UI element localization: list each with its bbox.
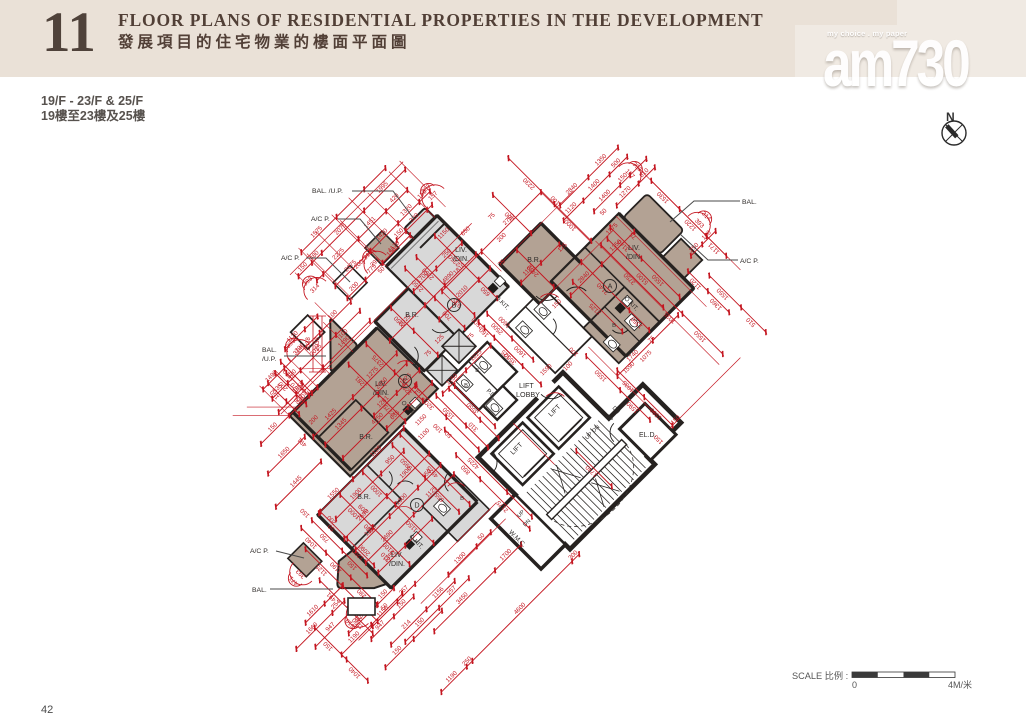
svg-text:50: 50 [599,207,609,217]
svg-text:B: B [464,383,468,389]
svg-text:150: 150 [297,261,310,274]
svg-text:LIV.: LIV. [391,552,403,559]
svg-text:750: 750 [318,531,331,544]
svg-text:200: 200 [496,231,509,244]
svg-text:B.R.: B.R. [527,257,541,264]
svg-text:/DIN.: /DIN. [453,256,469,263]
svg-text:D: D [414,501,419,510]
svg-text:310: 310 [467,420,480,433]
svg-text:100: 100 [549,194,562,207]
svg-text:A/C P.: A/C P. [281,255,300,262]
svg-text:A/C P.: A/C P. [250,548,269,555]
svg-text:BAL.: BAL. [262,347,277,354]
svg-text:B: B [452,301,457,310]
svg-text:B: B [460,496,464,502]
svg-text:491: 491 [296,436,309,449]
svg-text:150: 150 [322,639,335,652]
svg-text:0: 0 [852,680,857,690]
svg-text:650: 650 [460,225,473,238]
svg-text:O.KIT.: O.KIT. [494,294,511,311]
svg-text:LIV.: LIV. [455,247,467,254]
svg-text:A/C P.: A/C P. [740,258,759,265]
svg-text:BAL.: BAL. [742,199,757,206]
svg-text:/DIN.: /DIN. [389,561,405,568]
svg-text:250: 250 [461,655,474,668]
svg-text:500: 500 [610,157,623,170]
svg-text:1100: 1100 [417,427,432,442]
svg-text:C: C [402,377,407,386]
svg-text:150: 150 [391,644,404,657]
svg-text:LIV.: LIV. [628,245,640,252]
svg-text:157: 157 [427,189,440,202]
svg-text:EL.D.: EL.D. [639,432,657,439]
svg-text:SCALE 比例 :: SCALE 比例 : [792,670,848,681]
svg-text:100: 100 [432,421,445,434]
svg-text:LIFT: LIFT [519,381,534,390]
svg-text:50: 50 [476,532,486,542]
svg-text:BAL. /U.P.: BAL. /U.P. [312,188,343,195]
svg-text:510: 510 [745,316,758,329]
svg-text:BAL.: BAL. [252,587,267,594]
svg-text:4M/米: 4M/米 [948,679,972,690]
svg-text:B.: B. [475,368,481,374]
svg-text:1590: 1590 [622,360,637,375]
svg-text:75: 75 [487,211,497,221]
svg-text:257: 257 [446,584,459,597]
svg-text:/DIN.: /DIN. [626,254,642,261]
svg-text:/DIN.: /DIN. [373,390,389,397]
svg-text:314: 314 [309,282,322,295]
svg-text:214: 214 [400,618,413,631]
svg-text:100: 100 [327,308,340,321]
svg-text:A: A [608,282,613,291]
svg-text:A/C P.: A/C P. [311,216,330,223]
svg-text:LIV.: LIV. [375,381,387,388]
svg-text:1150: 1150 [414,413,429,428]
svg-text:100: 100 [700,229,713,242]
svg-text:/U.P.: /U.P. [262,356,276,363]
svg-text:B.R.: B.R. [357,494,371,501]
svg-text:LOBBY: LOBBY [516,390,540,399]
svg-text:150: 150 [267,421,280,434]
svg-text:B: B [612,323,616,329]
svg-text:947: 947 [324,621,337,634]
svg-text:257: 257 [398,584,411,597]
svg-text:2038: 2038 [314,337,321,351]
svg-text:150: 150 [377,588,390,601]
svg-text:1075: 1075 [639,349,654,364]
svg-text:150: 150 [414,616,427,629]
svg-text:B.R.: B.R. [405,312,419,319]
svg-text:150: 150 [299,506,312,519]
svg-text:B.R.: B.R. [359,434,373,441]
svg-text:2038: 2038 [305,337,312,351]
